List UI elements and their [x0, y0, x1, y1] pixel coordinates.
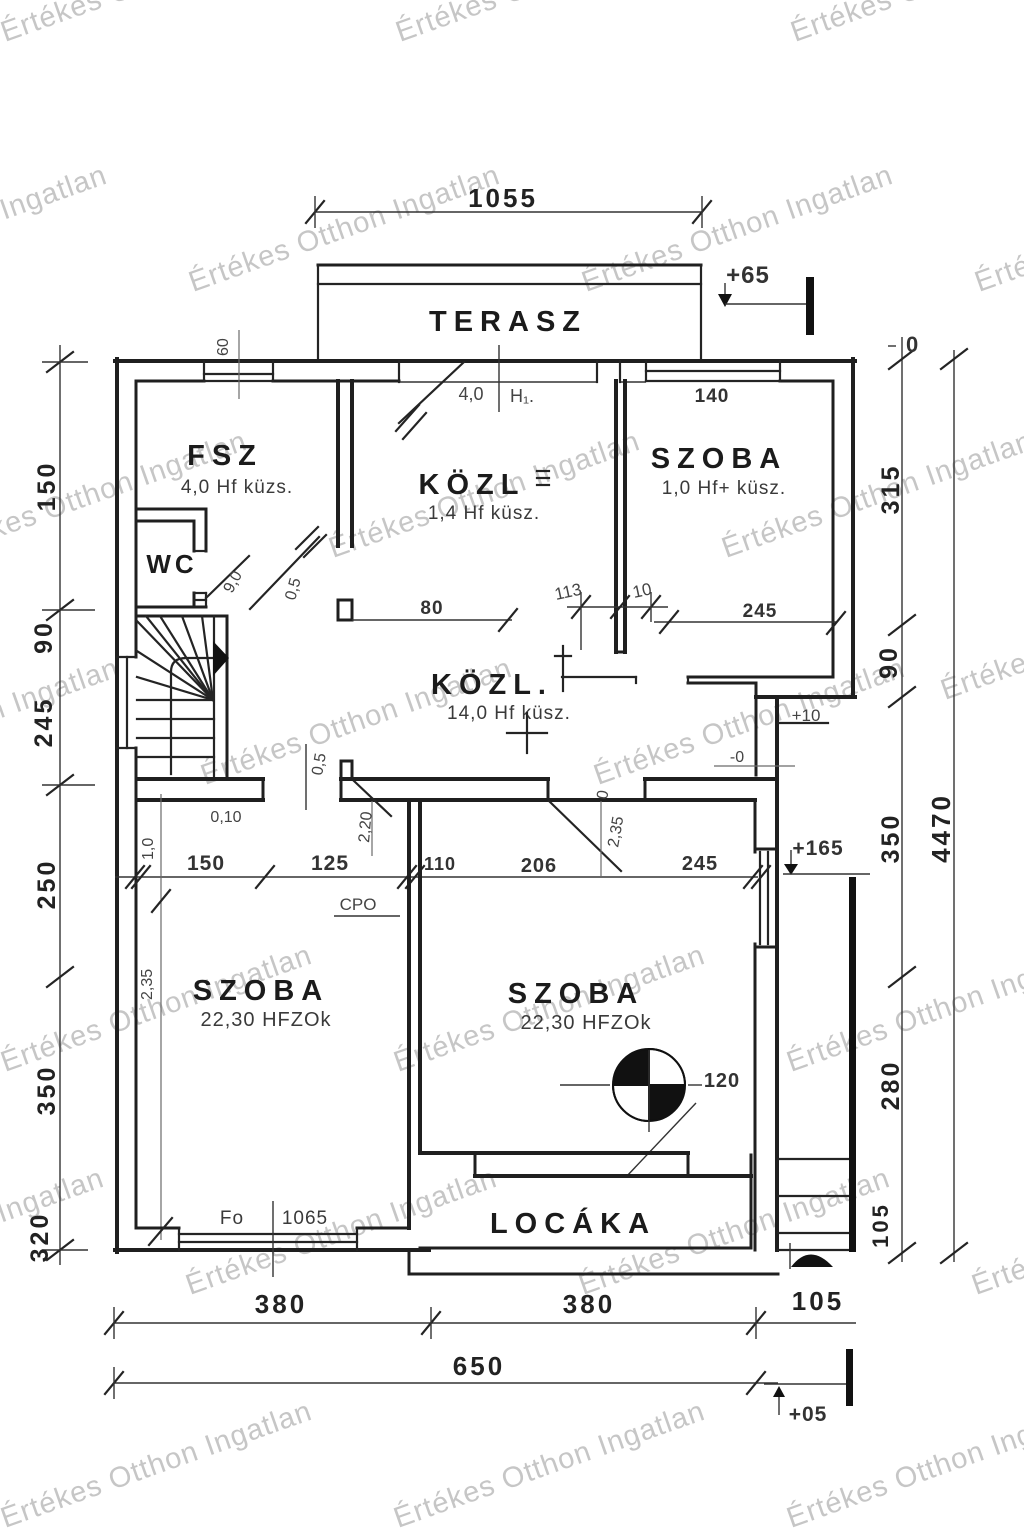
- svg-text:SZOBA: SZOBA: [651, 443, 788, 475]
- svg-text:-0: -0: [730, 749, 744, 766]
- svg-text:SZOBA: SZOBA: [193, 975, 330, 1007]
- svg-text:TERASZ: TERASZ: [429, 306, 587, 338]
- svg-text:2,20: 2,20: [356, 811, 376, 844]
- svg-text:1,4 Hf küsz.: 1,4 Hf küsz.: [428, 503, 540, 524]
- svg-text:22,30 HFZOk: 22,30 HFZOk: [200, 1009, 331, 1031]
- svg-text:110: 110: [424, 854, 456, 874]
- svg-text:1,0 Hf+ küsz.: 1,0 Hf+ küsz.: [662, 478, 786, 499]
- svg-text:+10: +10: [792, 706, 821, 725]
- svg-text:245: 245: [30, 697, 58, 748]
- svg-text:+165: +165: [792, 837, 843, 860]
- svg-text:90: 90: [30, 620, 58, 654]
- svg-text:+65: +65: [726, 262, 770, 289]
- svg-text:105: 105: [792, 1286, 844, 1316]
- svg-text:SZOBA: SZOBA: [508, 978, 645, 1010]
- svg-text:140: 140: [695, 386, 730, 407]
- svg-text:4470: 4470: [926, 793, 956, 863]
- svg-text:KÖZL.: KÖZL.: [431, 668, 553, 701]
- svg-text:WC: WC: [146, 549, 197, 579]
- svg-text:Fo: Fo: [220, 1208, 244, 1229]
- svg-text:150: 150: [187, 852, 225, 875]
- svg-text:1,0: 1,0: [140, 838, 157, 860]
- svg-text:+05: +05: [789, 1403, 828, 1426]
- svg-text:150: 150: [33, 461, 61, 512]
- svg-text:0,10: 0,10: [210, 809, 241, 826]
- svg-text:80: 80: [420, 598, 443, 619]
- svg-text:320: 320: [26, 1212, 54, 1263]
- svg-text:90: 90: [875, 645, 903, 679]
- svg-text:H₁.: H₁.: [510, 386, 534, 406]
- svg-text:125: 125: [311, 852, 349, 875]
- svg-text:4,0: 4,0: [458, 384, 483, 404]
- svg-text:650: 650: [453, 1351, 505, 1381]
- svg-text:22,30 HFZOk: 22,30 HFZOk: [520, 1012, 651, 1034]
- svg-text:CPO: CPO: [340, 895, 377, 914]
- svg-text:LOCÁKA: LOCÁKA: [490, 1206, 656, 1240]
- svg-text:2,35: 2,35: [139, 969, 156, 1000]
- svg-text:380: 380: [255, 1289, 307, 1319]
- svg-text:1065: 1065: [282, 1208, 328, 1229]
- svg-text:120: 120: [704, 1070, 740, 1092]
- svg-text:4,0 Hf küzs.: 4,0 Hf küzs.: [181, 477, 293, 498]
- svg-text:350: 350: [877, 813, 905, 864]
- svg-text:350: 350: [33, 1065, 61, 1116]
- svg-text:245: 245: [682, 853, 718, 875]
- svg-text:FSZ: FSZ: [187, 440, 263, 472]
- svg-text:0: 0: [906, 332, 919, 357]
- svg-text:10: 10: [631, 579, 653, 602]
- svg-text:315: 315: [877, 464, 905, 515]
- svg-text:KÖZL: KÖZL: [419, 468, 526, 501]
- svg-text:250: 250: [33, 859, 61, 910]
- svg-text:245: 245: [743, 601, 778, 622]
- svg-text:206: 206: [521, 855, 557, 877]
- svg-text:380: 380: [563, 1289, 615, 1319]
- svg-text:105: 105: [868, 1202, 893, 1248]
- svg-text:280: 280: [877, 1060, 905, 1111]
- svg-text:60: 60: [215, 338, 232, 356]
- svg-text:1055: 1055: [468, 183, 538, 213]
- svg-text:14,0 Hf küsz.: 14,0 Hf küsz.: [447, 703, 571, 724]
